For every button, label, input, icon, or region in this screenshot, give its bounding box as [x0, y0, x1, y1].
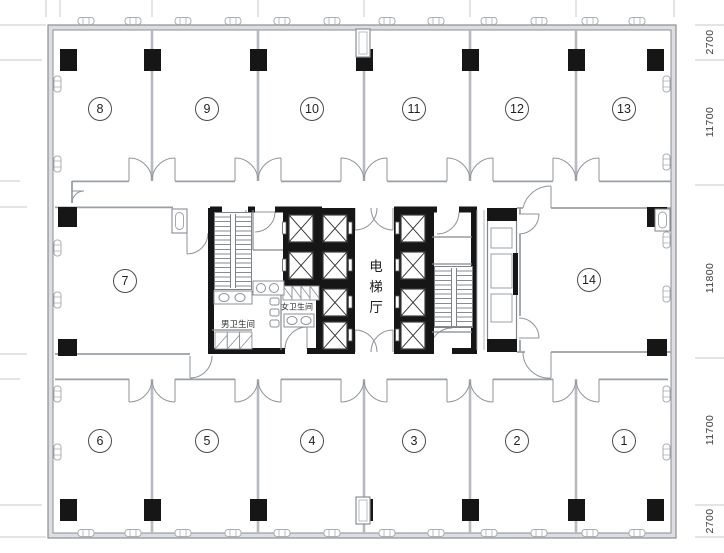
dim-right-11700-bot: 11700: [704, 415, 716, 445]
elevator-icon: [289, 215, 313, 242]
room-label-3: 3: [402, 429, 426, 453]
elevator-icon: [289, 252, 313, 279]
room-label-6: 6: [88, 429, 112, 453]
room-label-12: 12: [505, 97, 529, 121]
room-label-9: 9: [195, 97, 219, 121]
elevator-icon: [401, 289, 425, 316]
floor-plan-linework: [0, 0, 724, 553]
room-label-2: 2: [505, 429, 529, 453]
room-label-10: 10: [300, 97, 324, 121]
floor-plan: 8 9 10 11 12 13 7 14 6 5 4 3 2 1 电梯厅 女卫生…: [0, 0, 724, 553]
elevator-icon: [401, 322, 425, 349]
dim-right-2700-bot: 2700: [704, 509, 716, 534]
dim-right-2700-top: 2700: [704, 30, 716, 55]
elevator-icon: [323, 322, 347, 349]
elevator-icon: [323, 252, 347, 279]
dim-right-11700-top: 11700: [704, 107, 716, 137]
room-label-4: 4: [300, 429, 324, 453]
elevator-hall-label: 电梯厅: [364, 259, 384, 321]
elevator-icon: [323, 215, 347, 242]
elevator-icon: [401, 252, 425, 279]
room-label-5: 5: [195, 429, 219, 453]
elevator-icon: [323, 289, 347, 316]
room-label-11: 11: [402, 97, 426, 121]
dim-right-11800-mid: 11800: [704, 263, 716, 293]
elevator-icon: [401, 215, 425, 242]
mens-restroom-label: 男卫生间: [221, 318, 255, 330]
room-label-1: 1: [612, 429, 636, 453]
womens-restroom-label: 女卫生间: [281, 302, 313, 313]
stair-icon-east: [434, 266, 473, 328]
stair-icon-west: [214, 212, 252, 290]
room-label-13: 13: [612, 97, 636, 121]
room-label-7: 7: [113, 269, 137, 293]
room-label-14: 14: [577, 268, 601, 292]
room-label-8: 8: [88, 97, 112, 121]
